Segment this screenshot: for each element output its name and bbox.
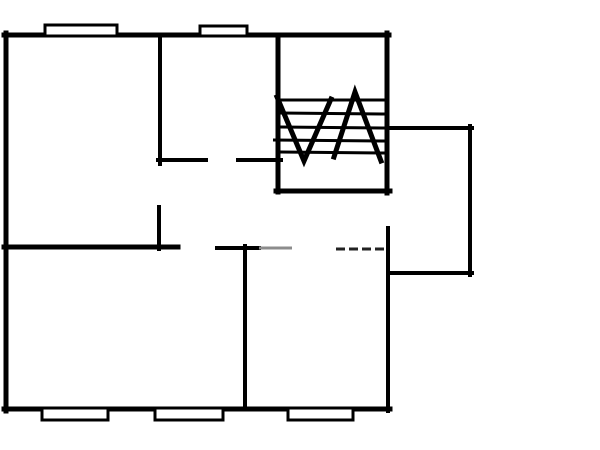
window-top-center — [200, 26, 247, 36]
stair-tread-2 — [280, 113, 386, 114]
floor-plan-page — [0, 0, 600, 450]
stair-tread-4 — [273, 140, 386, 141]
window-bottom-center — [155, 408, 223, 420]
window-top-left — [45, 25, 117, 36]
floor-plan-canvas — [0, 0, 600, 450]
window-bottom-left — [42, 408, 108, 420]
window-bottom-right — [288, 408, 353, 420]
